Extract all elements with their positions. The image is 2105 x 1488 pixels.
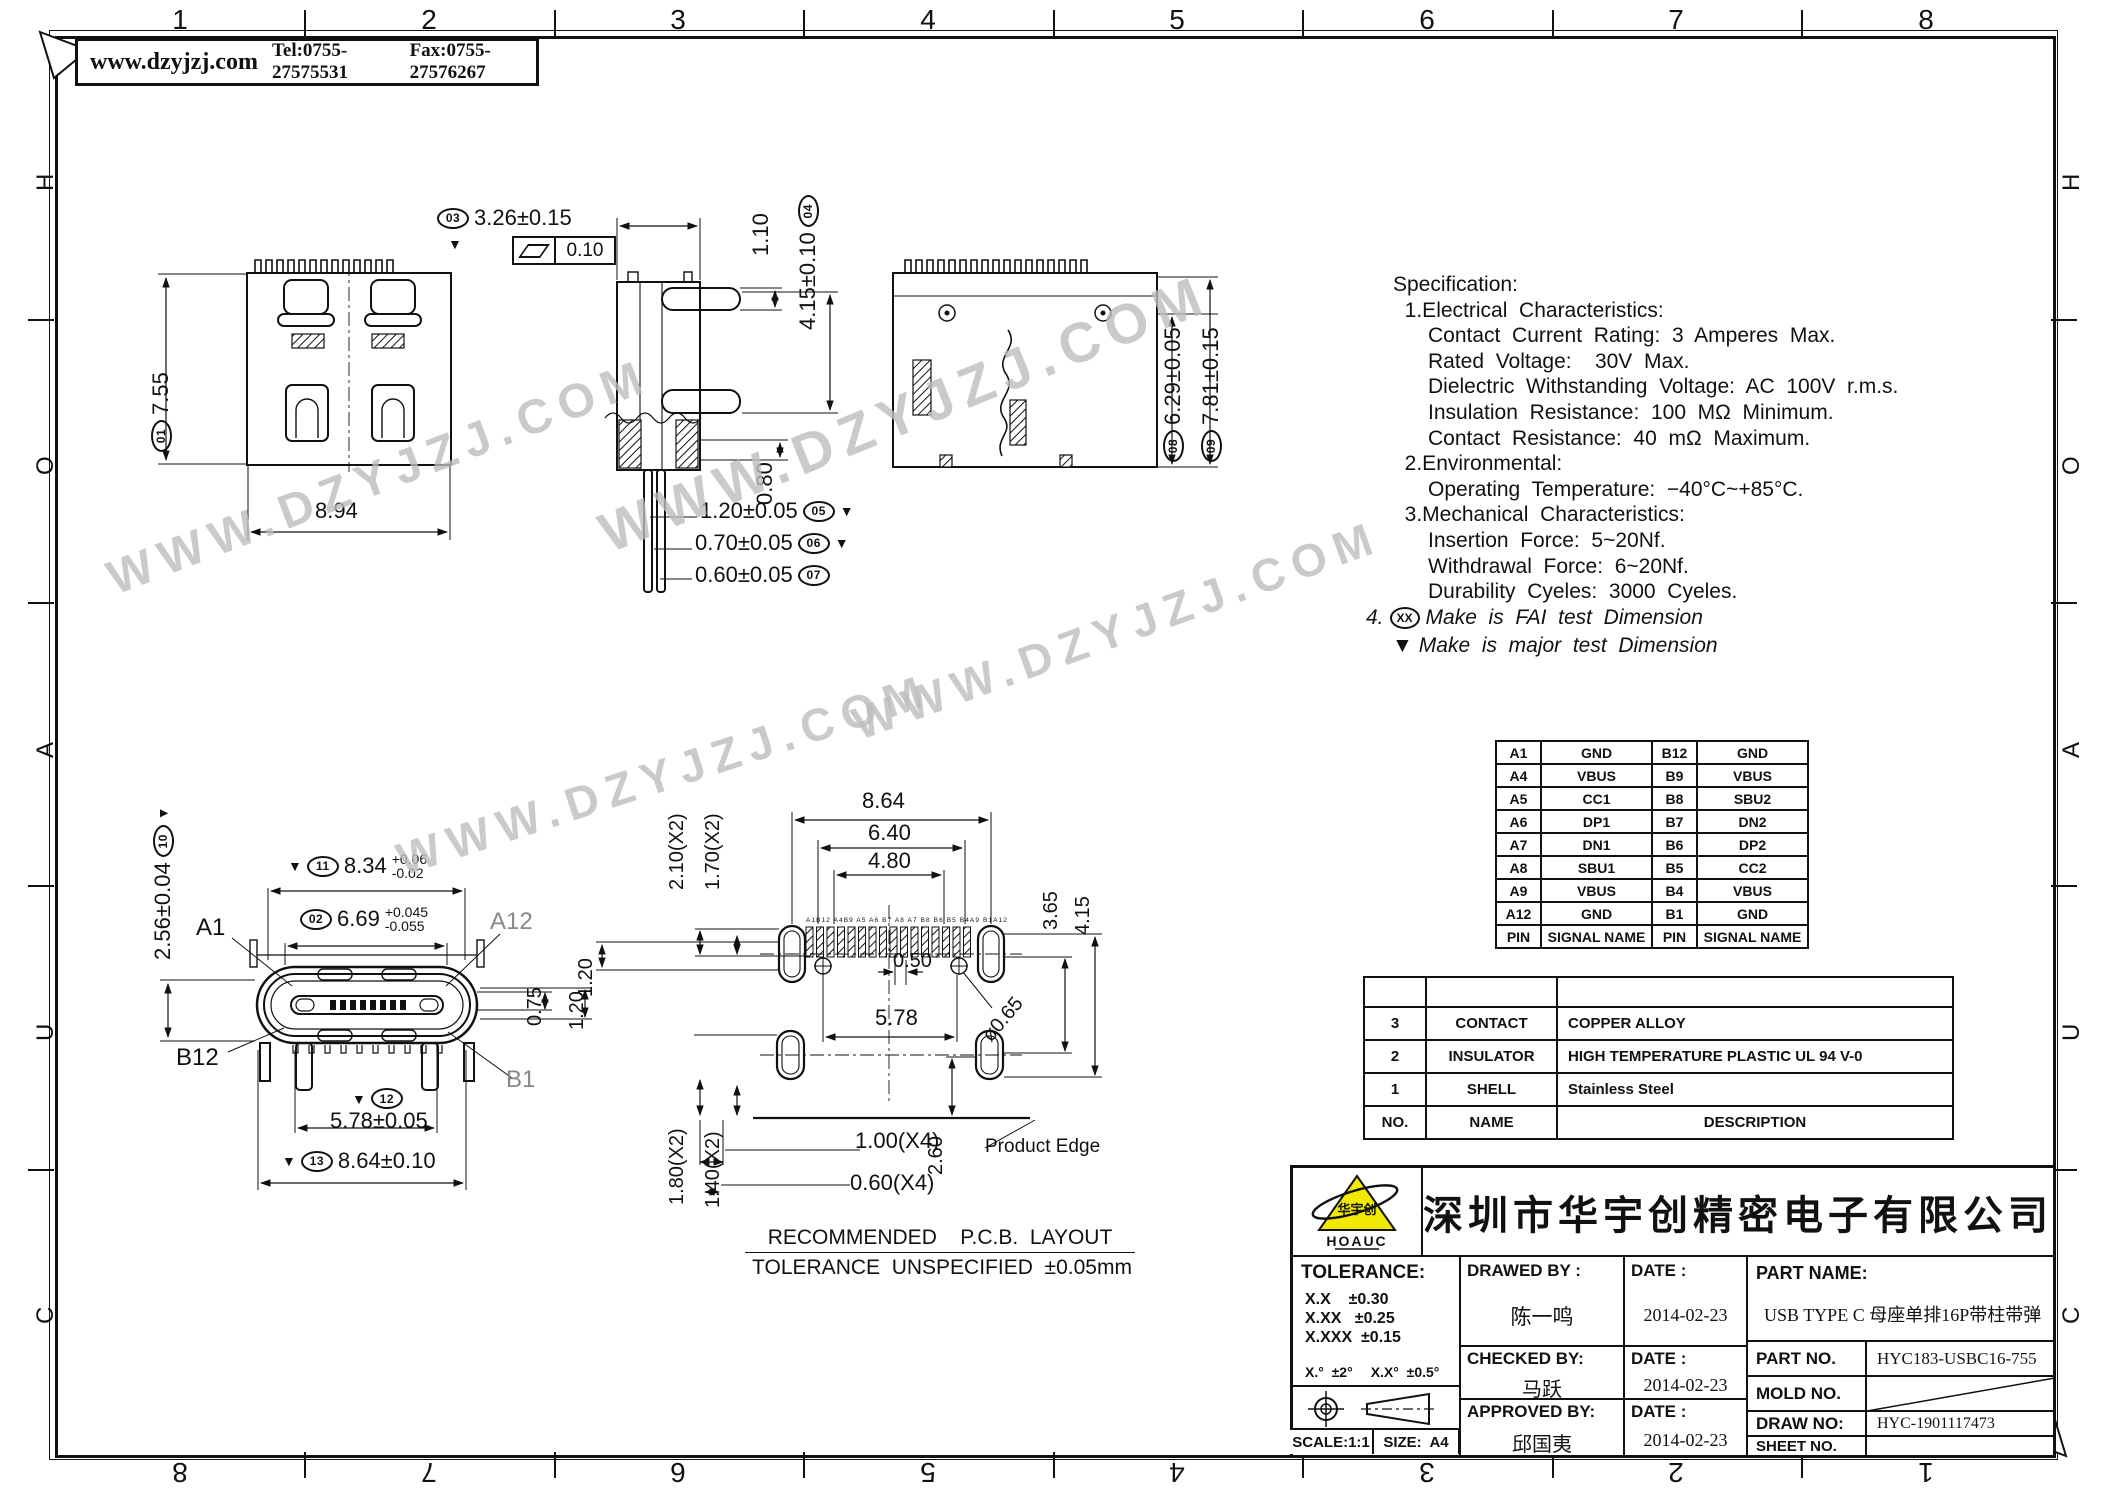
- note-text: Make is major test Dimension: [1419, 634, 1718, 658]
- spec-line: Rated Voltage: 30V Max.: [1393, 349, 1898, 375]
- note-number: 4.: [1366, 606, 1384, 630]
- drawed-by-label: DRAWED BY :: [1467, 1261, 1581, 1281]
- table-row: 1SHELLStainless Steel: [1364, 1073, 1953, 1106]
- tel-text: Tel:0755-27575531: [272, 40, 394, 84]
- dim-8-64-face: ▼ 13 8.64±0.10: [282, 1148, 436, 1174]
- spec-line: Insulation Resistance: 100 MΩ Minimum.: [1393, 400, 1898, 426]
- dim-0-70: 0.70±0.05 06 ▼: [695, 530, 849, 556]
- balloon-08: 08: [1163, 430, 1184, 462]
- tol-lower: -0.055: [385, 919, 428, 933]
- angle-tol: X.° ±2°: [1305, 1364, 1353, 1380]
- dim-pcb-4-80: 4.80: [868, 848, 911, 874]
- date-value: 2014-02-23: [1625, 1375, 1746, 1396]
- dim-pcb-0-50: 0.50: [893, 950, 932, 973]
- dim-2-56: 2.56±0.04 10 ▼: [150, 806, 176, 960]
- table-row: A12GNDB1GND: [1496, 902, 1808, 925]
- balloon-10: 10: [153, 825, 174, 857]
- note-text: Make is FAI test Dimension: [1426, 606, 1703, 630]
- spec-line: Dielectric Withstanding Voltage: AC 100V…: [1393, 374, 1898, 400]
- spec-line: Durability Cyeles: 3000 Cyeles.: [1393, 579, 1898, 605]
- part-name-value: USB TYPE C 母座单排16P带柱带弹: [1764, 1301, 2041, 1327]
- dim-text: 0.70±0.05: [695, 530, 793, 556]
- materials-table: 3CONTACTCOPPER ALLOY 2INSULATORHIGH TEMP…: [1363, 976, 1954, 1140]
- note-major-dimension: ▼ Make is major test Dimension: [1392, 634, 1718, 658]
- dim-text: 6.29±0.05: [1160, 327, 1186, 425]
- date-cell-1: DATE : 2014-02-23: [1625, 1255, 1748, 1345]
- taper-symbol-icon: [1361, 1392, 1435, 1426]
- table-row-empty: [1364, 977, 1953, 1007]
- triangle-icon: ▼: [288, 858, 302, 874]
- draw-no-label-cell: DRAW NO:: [1748, 1410, 1865, 1435]
- draw-no-label: DRAW NO:: [1756, 1414, 1844, 1434]
- title-block: 华宇创 HOAUC 深圳市华宇创精密电子有限公司 TOLERANCE: X.X …: [1290, 1165, 2056, 1458]
- balloon-12: 12: [371, 1088, 403, 1109]
- dim-pcb-1-80: 1.80(X2): [666, 1128, 689, 1205]
- table-row: 3CONTACTCOPPER ALLOY: [1364, 1007, 1953, 1040]
- dim-0-75: 0.75: [524, 987, 547, 1026]
- dim-pcb-0-60: 0.60(X4): [850, 1170, 934, 1196]
- part-name-label: PART NAME:: [1756, 1263, 1868, 1284]
- balloon-06: 06: [798, 533, 830, 554]
- pcb-tolerance-note: TOLERANCE UNSPECIFIED ±0.05mm: [732, 1256, 1152, 1280]
- spec-line: 3.Mechanical Characteristics:: [1393, 502, 1898, 528]
- tolerance-row: X.XX ±0.25: [1305, 1310, 1395, 1328]
- draw-no-value: HYC-1901117473: [1865, 1410, 2053, 1435]
- date-label: DATE :: [1631, 1261, 1686, 1281]
- part-name-cell: PART NAME: USB TYPE C 母座单排16P带柱带弹: [1748, 1255, 2053, 1340]
- tolerance-cell: TOLERANCE: X.X ±0.30 X.XX ±0.25 X.XXX ±0…: [1293, 1255, 1461, 1358]
- product-edge-label: Product Edge: [985, 1136, 1100, 1158]
- dim-6-69: 02 6.69 +0.045-0.055: [300, 905, 428, 933]
- dim-pcb-5-78: 5.78: [875, 1005, 918, 1031]
- date-cell-3: DATE : 2014-02-23: [1625, 1398, 1748, 1455]
- logo-cell: 华宇创 HOAUC: [1293, 1168, 1423, 1255]
- date-cell-2: DATE : 2014-02-23: [1625, 1345, 1748, 1398]
- triangle-icon: ▼: [155, 806, 171, 820]
- balloon-01: 01: [151, 420, 172, 452]
- dim-3-26: 03 3.26±0.15: [437, 205, 572, 231]
- dim-text: 8.94: [315, 498, 358, 524]
- dim-text: 1.20±0.05: [700, 498, 798, 524]
- svg-text:华宇创: 华宇创: [1337, 1202, 1376, 1217]
- table-header-row: NO.NAMEDESCRIPTION: [1364, 1106, 1953, 1139]
- parallelism-icon: [514, 238, 556, 263]
- triangle-icon: ▼: [282, 1153, 296, 1169]
- approved-by-cell: APPROVED BY: 邱国夷: [1461, 1398, 1625, 1455]
- dim-height-7-55: 01 7.55: [148, 372, 174, 452]
- dim-7-81: 09 7.81±0.15: [1198, 327, 1224, 462]
- diagonal-strike: [1867, 1377, 2055, 1412]
- dim-text: 6.69: [337, 906, 380, 932]
- pcb-layout-title: RECOMMENDED P.C.B. LAYOUT: [745, 1226, 1135, 1253]
- tolerance-title: TOLERANCE:: [1301, 1262, 1425, 1284]
- projection-symbols-cell: [1293, 1385, 1461, 1431]
- drawed-by-cell: DRAWED BY : 陈一鸣: [1461, 1255, 1625, 1345]
- dim-text: 2.56±0.04: [150, 862, 176, 960]
- specification-block: Specification: 1.Electrical Characterist…: [1393, 272, 1898, 605]
- dim-5-78: 5.78±0.05: [330, 1108, 428, 1134]
- mold-no-label-cell: MOLD NO.: [1748, 1375, 1865, 1410]
- tolerance-row: X.X ±0.30: [1305, 1291, 1389, 1309]
- dim-text: 3.26±0.15: [474, 205, 572, 231]
- approved-by-value: 邱国夷: [1461, 1428, 1623, 1457]
- table-row: A9VBUSB4VBUS: [1496, 879, 1808, 902]
- dim-pcb-2-60: 2.60: [925, 1136, 948, 1175]
- table-row: A4VBUSB9VBUS: [1496, 764, 1808, 787]
- pin-label-a12: A12: [490, 908, 533, 936]
- major-test-symbol: ▼: [1392, 634, 1413, 658]
- dim-text: 4.15±0.10: [795, 232, 821, 330]
- pin-assignment-table: A1GNDB12GND A4VBUSB9VBUS A5CC1B8SBU2 A6D…: [1495, 740, 1809, 949]
- spec-line: Insertion Force: 5~20Nf.: [1393, 528, 1898, 554]
- table-row: A7DN1B6DP2: [1496, 833, 1808, 856]
- drawed-by-value: 陈一鸣: [1461, 1301, 1623, 1331]
- pin-label-b12: B12: [176, 1044, 219, 1072]
- part-no-label-cell: PART NO.: [1748, 1340, 1865, 1375]
- balloon-09: 09: [1201, 430, 1222, 462]
- dim-1-10: 1.10: [748, 213, 774, 256]
- spec-line: 1.Electrical Characteristics:: [1393, 298, 1898, 324]
- dim-text: 0.60±0.05: [695, 562, 793, 588]
- triangle-icon: ▼: [352, 1091, 366, 1107]
- pin-label-b1: B1: [506, 1066, 535, 1094]
- company-contact-box: www.dzyjzj.com Tel:0755-27575531 Fax:075…: [75, 38, 539, 86]
- table-row: A1GNDB12GND: [1496, 741, 1808, 764]
- spec-line: Specification:: [1393, 272, 1898, 298]
- balloon-07: 07: [798, 565, 830, 586]
- dim-pcb-6-40: 6.40: [868, 820, 911, 846]
- fai-symbol: XX: [1390, 607, 1420, 629]
- dim-8-34: ▼ 11 8.34 +0.06-0.02: [288, 852, 427, 880]
- dim-text: 7.81±0.15: [1198, 327, 1224, 425]
- balloon-02: 02: [300, 909, 332, 930]
- dim-width-8-94: 8.94: [315, 498, 358, 524]
- dim-pcb-1-70: 1.70(X2): [702, 813, 725, 890]
- dim-text: 8.34: [344, 853, 387, 879]
- triangle-icon: ▼: [840, 503, 854, 519]
- part-no-value: HYC183-USBC16-755: [1865, 1340, 2053, 1375]
- mold-no-value-empty: [1865, 1375, 2053, 1410]
- table-row: A5CC1B8SBU2: [1496, 787, 1808, 810]
- sheet-no-label: SHEET NO.: [1756, 1438, 1837, 1455]
- table-row: A6DP1B7DN2: [1496, 810, 1808, 833]
- spec-line: Contact Resistance: 40 mΩ Maximum.: [1393, 426, 1898, 452]
- svg-text:HOAUC: HOAUC: [1326, 1233, 1387, 1249]
- company-name: 深圳市华宇创精密电子有限公司: [1423, 1168, 2053, 1255]
- date-label: DATE :: [1631, 1402, 1686, 1422]
- dim-5-78-marker: ▼ 12: [352, 1088, 403, 1109]
- fcf-value: 0.10: [556, 238, 614, 263]
- scale-cell: SCALE:1:1: [1290, 1430, 1374, 1454]
- balloon-11: 11: [307, 856, 339, 877]
- pin-label-a1: A1: [196, 914, 225, 942]
- approved-by-label: APPROVED BY:: [1467, 1402, 1595, 1422]
- balloon-03: 03: [437, 208, 469, 229]
- dim-pcb-3-65: 3.65: [1040, 891, 1063, 930]
- dim-pcb-8-64: 8.64: [862, 788, 905, 814]
- company-logo: 华宇创 HOAUC: [1305, 1172, 1409, 1252]
- size-cell: SIZE: A4: [1374, 1430, 1458, 1454]
- spec-line: Withdrawal Force: 6~20Nf.: [1393, 554, 1898, 580]
- table-header-row: PINSIGNAL NAMEPINSIGNAL NAME: [1496, 925, 1808, 948]
- spec-line: Operating Temperature: −40°C~+85°C.: [1393, 477, 1898, 503]
- dim-pcb-1-40: 1.40(X2): [702, 1131, 725, 1208]
- dim-text: 7.55: [148, 372, 174, 415]
- part-no-label: PART NO.: [1756, 1349, 1836, 1369]
- triangle-icon: ▼: [835, 535, 849, 551]
- checked-by-label: CHECKED BY:: [1467, 1349, 1584, 1369]
- tol-lower: -0.02: [392, 866, 427, 880]
- table-row: 2INSULATORHIGH TEMPERATURE PLASTIC UL 94…: [1364, 1040, 1953, 1073]
- angle-tolerance-cell: X.° ±2° X.X° ±0.5°: [1293, 1358, 1461, 1385]
- website-text: www.dzyjzj.com: [90, 49, 258, 76]
- balloon-13: 13: [301, 1151, 333, 1172]
- tolerance-row: X.XXX ±0.15: [1305, 1329, 1401, 1347]
- checked-by-cell: CHECKED BY: 马跃: [1461, 1345, 1625, 1398]
- dim-text: 1.10: [748, 213, 774, 256]
- dim-0-60: 0.60±0.05 07: [695, 562, 830, 588]
- spec-line: 2.Environmental:: [1393, 451, 1898, 477]
- sheet-no-label-cell: SHEET NO.: [1748, 1435, 1865, 1455]
- target-symbol-icon: [1307, 1390, 1345, 1428]
- date-value: 2014-02-23: [1625, 1305, 1746, 1326]
- date-label: DATE :: [1631, 1349, 1686, 1369]
- note-fai-dimension: 4. XX Make is FAI test Dimension: [1366, 606, 1703, 630]
- triangle-icon: ▼: [448, 236, 462, 252]
- pad-labels: A1B12 A4B9 A5 A6 B7 A8 A7 B8 B6 B5 B4A9 …: [806, 917, 1008, 924]
- table-row: A8SBU1B5CC2: [1496, 856, 1808, 879]
- mold-no-label: MOLD NO.: [1756, 1384, 1841, 1404]
- major-test-marker: ▼: [448, 236, 462, 252]
- dim-pcb-2-10: 2.10(X2): [666, 813, 689, 890]
- balloon-04: 04: [798, 195, 819, 227]
- fax-text: Fax:0755-27576267: [410, 40, 536, 84]
- scale-size-row: SCALE:1:1 SIZE: A4: [1290, 1428, 1460, 1454]
- tol-upper: +0.06: [392, 852, 427, 866]
- dim-pcb-4-15: 4.15: [1072, 896, 1095, 935]
- date-value: 2014-02-23: [1625, 1430, 1746, 1451]
- flatness-control-frame: 0.10: [512, 236, 616, 265]
- sheet-no-value-empty: [1865, 1435, 2053, 1455]
- dim-pcb-1-20: 1.20: [575, 958, 598, 997]
- balloon-05: 05: [803, 501, 835, 522]
- dim-6-29: 08 6.29±0.05: [1160, 327, 1186, 462]
- dim-1-20: 1.20±0.05 05 ▼: [700, 498, 854, 524]
- tol-upper: +0.045: [385, 905, 428, 919]
- spec-line: Contact Current Rating: 3 Amperes Max.: [1393, 323, 1898, 349]
- dim-4-15: 4.15±0.10 04: [795, 195, 821, 330]
- dim-text: 8.64±0.10: [338, 1148, 436, 1174]
- angle-tol: X.X° ±0.5°: [1371, 1364, 1440, 1380]
- engineering-drawing-sheet: 1 2 3 4 5 6 7 8 8 7 6 5 4 3 2 1 H O A U …: [0, 0, 2105, 1488]
